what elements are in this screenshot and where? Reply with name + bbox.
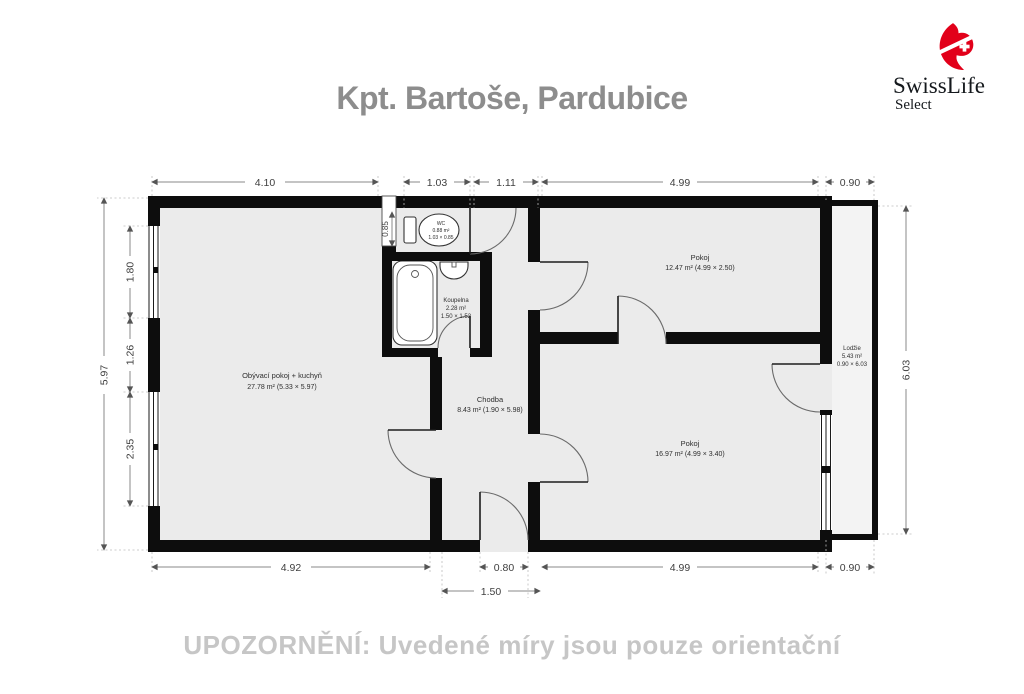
dim-label: 1.11 (496, 177, 516, 189)
disclaimer-text: UPOZORNĚNÍ: Uvedené míry jsou pouze orie… (0, 630, 1024, 661)
window-left-upper (148, 226, 160, 318)
dim-label: 1.26 (125, 345, 137, 366)
floorplan-page: Kpt. Bartoše, Pardubice SwissLife Select (0, 0, 1024, 694)
dimension-top: 4.10 1.03 1.11 4.99 0.90 (152, 175, 874, 189)
dim-label: 0.80 (494, 562, 515, 574)
svg-text:WC: WC (437, 221, 446, 227)
svg-text:Obývací pokoj + kuchyň: Obývací pokoj + kuchyň (242, 371, 322, 380)
svg-text:1.50 × 1.52: 1.50 × 1.52 (441, 314, 472, 320)
svg-text:12.47 m² (4.99 × 2.50): 12.47 m² (4.99 × 2.50) (665, 265, 734, 272)
dim-label: 1.03 (427, 177, 448, 189)
dimension-left: 5.97 1.80 1.26 2.35 (97, 198, 137, 550)
svg-text:Lodžie: Lodžie (843, 346, 861, 352)
svg-text:5.43 m²: 5.43 m² (842, 354, 862, 360)
svg-text:2.28 m²: 2.28 m² (446, 306, 466, 312)
svg-text:27.78 m² (5.33 × 5.97): 27.78 m² (5.33 × 5.97) (247, 384, 316, 391)
svg-text:Chodba: Chodba (477, 395, 504, 404)
dim-label: 4.99 (670, 177, 691, 189)
svg-text:0.88 m²: 0.88 m² (433, 228, 450, 234)
dim-label: 1.50 (481, 586, 502, 598)
dimension-bottom: 4.92 0.80 4.99 0.90 1.50 (152, 560, 874, 598)
svg-text:Pokoj: Pokoj (691, 253, 710, 262)
floorplan-drawing: 4.10 1.03 1.11 4.99 0.90 4.92 0.80 4.99 (0, 0, 1024, 694)
dim-label: 4.99 (670, 562, 691, 574)
svg-text:Koupelna: Koupelna (443, 298, 469, 304)
svg-text:1.03 × 0.85: 1.03 × 0.85 (428, 235, 453, 241)
dim-label: 0.90 (840, 177, 861, 189)
dimension-right: 6.03 (899, 206, 913, 534)
dim-label: 4.10 (255, 177, 276, 189)
dim-label: 6.03 (901, 360, 913, 381)
bathtub-icon (393, 261, 437, 345)
svg-text:8.43 m² (1.90 × 5.98): 8.43 m² (1.90 × 5.98) (457, 407, 523, 414)
svg-text:16.97 m² (4.99 × 3.40): 16.97 m² (4.99 × 3.40) (655, 451, 724, 458)
svg-text:Pokoj: Pokoj (681, 439, 700, 448)
toilet-icon (404, 214, 459, 246)
shaft-niche (382, 196, 396, 246)
window-loggia (820, 415, 832, 530)
dim-label: 5.97 (99, 365, 111, 386)
window-left-lower (148, 392, 160, 506)
dim-label: 0.85 (381, 221, 390, 237)
dim-label: 4.92 (281, 562, 302, 574)
dim-label: 2.35 (125, 439, 137, 460)
dim-label: 0.90 (840, 562, 861, 574)
svg-text:0.90 × 6.03: 0.90 × 6.03 (837, 362, 868, 368)
dim-label: 1.80 (125, 262, 137, 283)
